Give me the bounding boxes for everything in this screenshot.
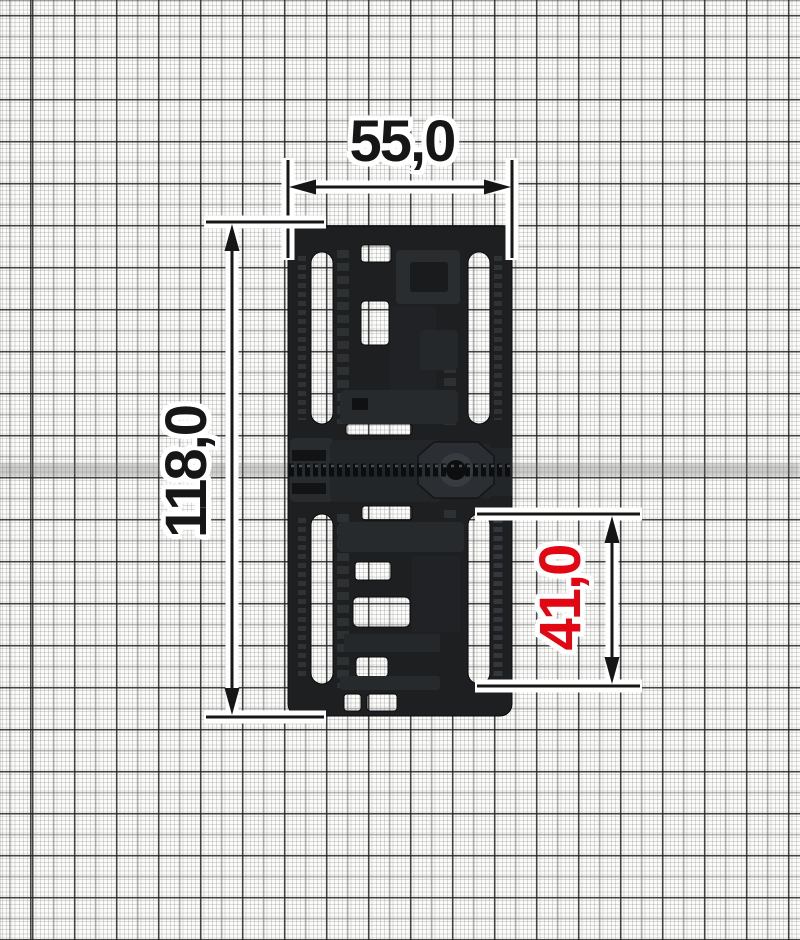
buckle-detail: [412, 556, 460, 632]
graph-paper-background: 55,0 118,0 41,0: [0, 0, 800, 940]
dim-height-label: 118,0: [159, 395, 215, 549]
dim-width-label: 55,0: [334, 114, 470, 170]
buckle-detail: [292, 483, 326, 494]
buckle-detail: [410, 262, 448, 292]
buckle-part: [288, 226, 512, 716]
buckle-detail: [420, 330, 458, 370]
dim-slot-label: 41,0: [533, 537, 589, 659]
buckle-detail: [292, 450, 326, 461]
buckle-detail: [352, 398, 368, 410]
buckle-detail: [340, 676, 440, 690]
buckle-detail: [344, 634, 440, 652]
buckle-detail: [338, 522, 464, 552]
